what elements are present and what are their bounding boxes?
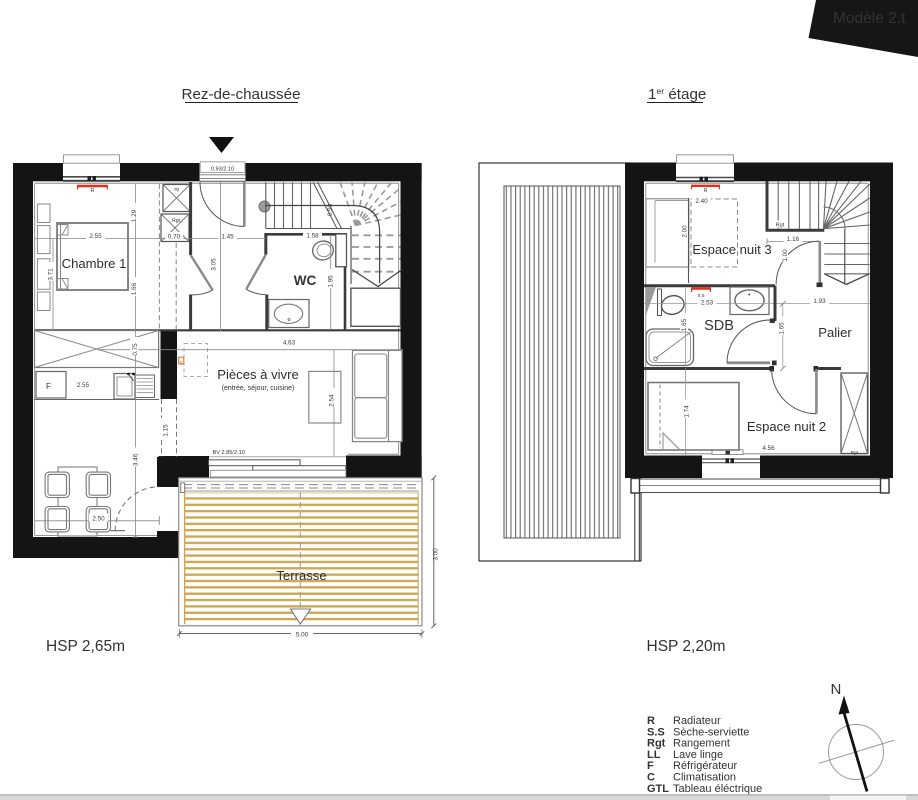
svg-text:1.16: 1.16 bbox=[787, 236, 800, 243]
svg-text:2.50: 2.50 bbox=[92, 515, 105, 522]
svg-text:LL: LL bbox=[647, 749, 661, 761]
svg-text:1.65: 1.65 bbox=[778, 322, 785, 335]
svg-text:Espace nuit 2: Espace nuit 2 bbox=[747, 419, 826, 434]
svg-text:Tableau éléctrique: Tableau éléctrique bbox=[673, 783, 762, 795]
svg-text:0.93: 0.93 bbox=[327, 203, 334, 216]
svg-text:2.40: 2.40 bbox=[695, 198, 708, 205]
svg-text:2.53: 2.53 bbox=[701, 299, 714, 306]
svg-text:F: F bbox=[647, 760, 654, 772]
svg-text:Modèle 2.t: Modèle 2.t bbox=[833, 10, 906, 27]
svg-text:Espace nuit 3: Espace nuit 3 bbox=[692, 242, 771, 257]
svg-text:0.75: 0.75 bbox=[132, 343, 139, 356]
svg-text:WC: WC bbox=[294, 273, 317, 288]
svg-text:Rgt: Rgt bbox=[172, 218, 180, 224]
svg-text:1.93: 1.93 bbox=[813, 298, 826, 305]
svg-text:0.93/2.10: 0.93/2.10 bbox=[211, 167, 234, 173]
svg-text:dg: dg bbox=[174, 187, 180, 192]
svg-text:Palier: Palier bbox=[818, 325, 852, 340]
svg-text:S.S: S.S bbox=[647, 726, 665, 738]
svg-text:Réfrigérateur: Réfrigérateur bbox=[673, 760, 738, 772]
svg-text:Rgt: Rgt bbox=[647, 738, 666, 750]
svg-text:3.00: 3.00 bbox=[433, 548, 440, 561]
svg-text:R: R bbox=[91, 188, 95, 194]
svg-text:Rez-de-chaussée: Rez-de-chaussée bbox=[181, 86, 300, 103]
svg-text:Lave linge: Lave linge bbox=[673, 749, 723, 761]
svg-text:3.05: 3.05 bbox=[211, 258, 218, 271]
svg-text:2.00: 2.00 bbox=[682, 225, 689, 238]
svg-text:1.29: 1.29 bbox=[131, 209, 138, 222]
svg-text:Terrasse: Terrasse bbox=[276, 568, 326, 583]
svg-text:S.S: S.S bbox=[697, 293, 704, 298]
svg-text:1.58: 1.58 bbox=[306, 232, 319, 239]
svg-text:HSP 2,20m: HSP 2,20m bbox=[647, 638, 726, 655]
svg-text:BV 2.85/2.10: BV 2.85/2.10 bbox=[213, 450, 245, 456]
svg-text:Sèche-serviette: Sèche-serviette bbox=[673, 726, 749, 738]
svg-text:2.54: 2.54 bbox=[329, 394, 336, 407]
svg-text:GTL: GTL bbox=[647, 783, 669, 795]
svg-text:Climatisation: Climatisation bbox=[673, 772, 736, 784]
svg-text:1.66: 1.66 bbox=[131, 282, 138, 295]
svg-text:3.46: 3.46 bbox=[133, 453, 140, 466]
svg-text:0.70: 0.70 bbox=[168, 233, 181, 240]
svg-text:Radiateur: Radiateur bbox=[673, 715, 721, 727]
svg-text:1.15: 1.15 bbox=[163, 424, 170, 437]
svg-text:4.56: 4.56 bbox=[762, 445, 775, 452]
svg-text:2.55: 2.55 bbox=[77, 382, 90, 389]
svg-text:R: R bbox=[704, 188, 708, 194]
svg-text:Rangement: Rangement bbox=[673, 738, 730, 750]
svg-text:HSP 2,65m: HSP 2,65m bbox=[46, 638, 125, 655]
svg-text:SDB: SDB bbox=[704, 318, 734, 334]
svg-text:Pièces à vivre: Pièces à vivre bbox=[217, 367, 299, 382]
svg-text:N: N bbox=[831, 681, 842, 698]
svg-text:C: C bbox=[647, 772, 655, 784]
svg-text:Rgt.: Rgt. bbox=[851, 450, 860, 456]
svg-text:Rgt: Rgt bbox=[776, 223, 785, 229]
svg-text:1.74: 1.74 bbox=[684, 405, 691, 418]
svg-text:1.65: 1.65 bbox=[681, 318, 688, 331]
svg-text:1.00: 1.00 bbox=[782, 249, 789, 262]
svg-text:F: F bbox=[46, 382, 51, 391]
svg-text:5.00: 5.00 bbox=[296, 632, 309, 639]
svg-text:(entrée, séjour, cuisine): (entrée, séjour, cuisine) bbox=[222, 385, 295, 392]
svg-text:Chambre 1: Chambre 1 bbox=[62, 256, 127, 271]
svg-text:R: R bbox=[647, 715, 655, 727]
svg-text:4.63: 4.63 bbox=[283, 339, 296, 346]
svg-text:3.71: 3.71 bbox=[48, 268, 55, 281]
svg-text:1.45: 1.45 bbox=[221, 233, 234, 240]
svg-text:1.95: 1.95 bbox=[328, 275, 335, 288]
svg-text:2.55: 2.55 bbox=[89, 233, 102, 240]
